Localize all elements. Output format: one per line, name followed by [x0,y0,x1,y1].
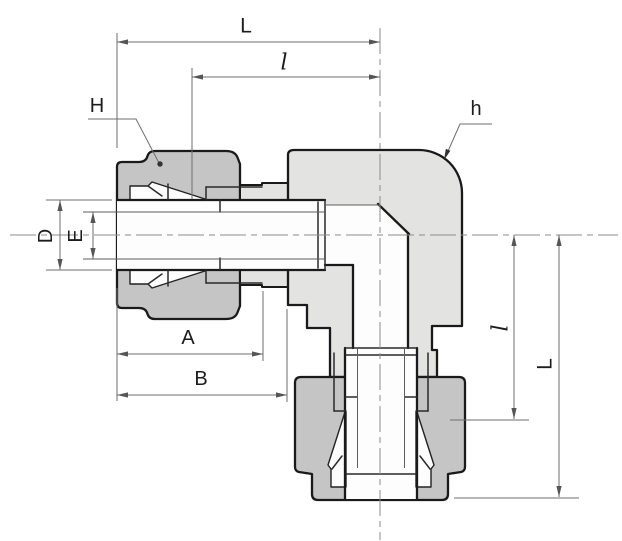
dim-label-l-top: l [280,51,287,76]
leader-h [445,124,492,158]
dim-label-A: A [181,328,194,348]
dim-label-L-top: L [240,16,252,37]
dim-label-l-right: l [489,324,514,331]
dim-label-h: h [470,99,481,119]
fitting-sectional-view [0,0,622,541]
leader-h-arrow [444,149,450,160]
dim-label-E: E [66,229,86,242]
vertical-tube [345,348,417,499]
dim-label-L-right: L [535,358,556,370]
elbow-fitting-drawing-canvas: L l H h D E A B l L [0,0,622,541]
dim-label-H: H [90,96,104,116]
dim-label-B: B [194,369,207,389]
dim-label-D: D [36,229,56,243]
leader-H-dot [157,161,162,166]
